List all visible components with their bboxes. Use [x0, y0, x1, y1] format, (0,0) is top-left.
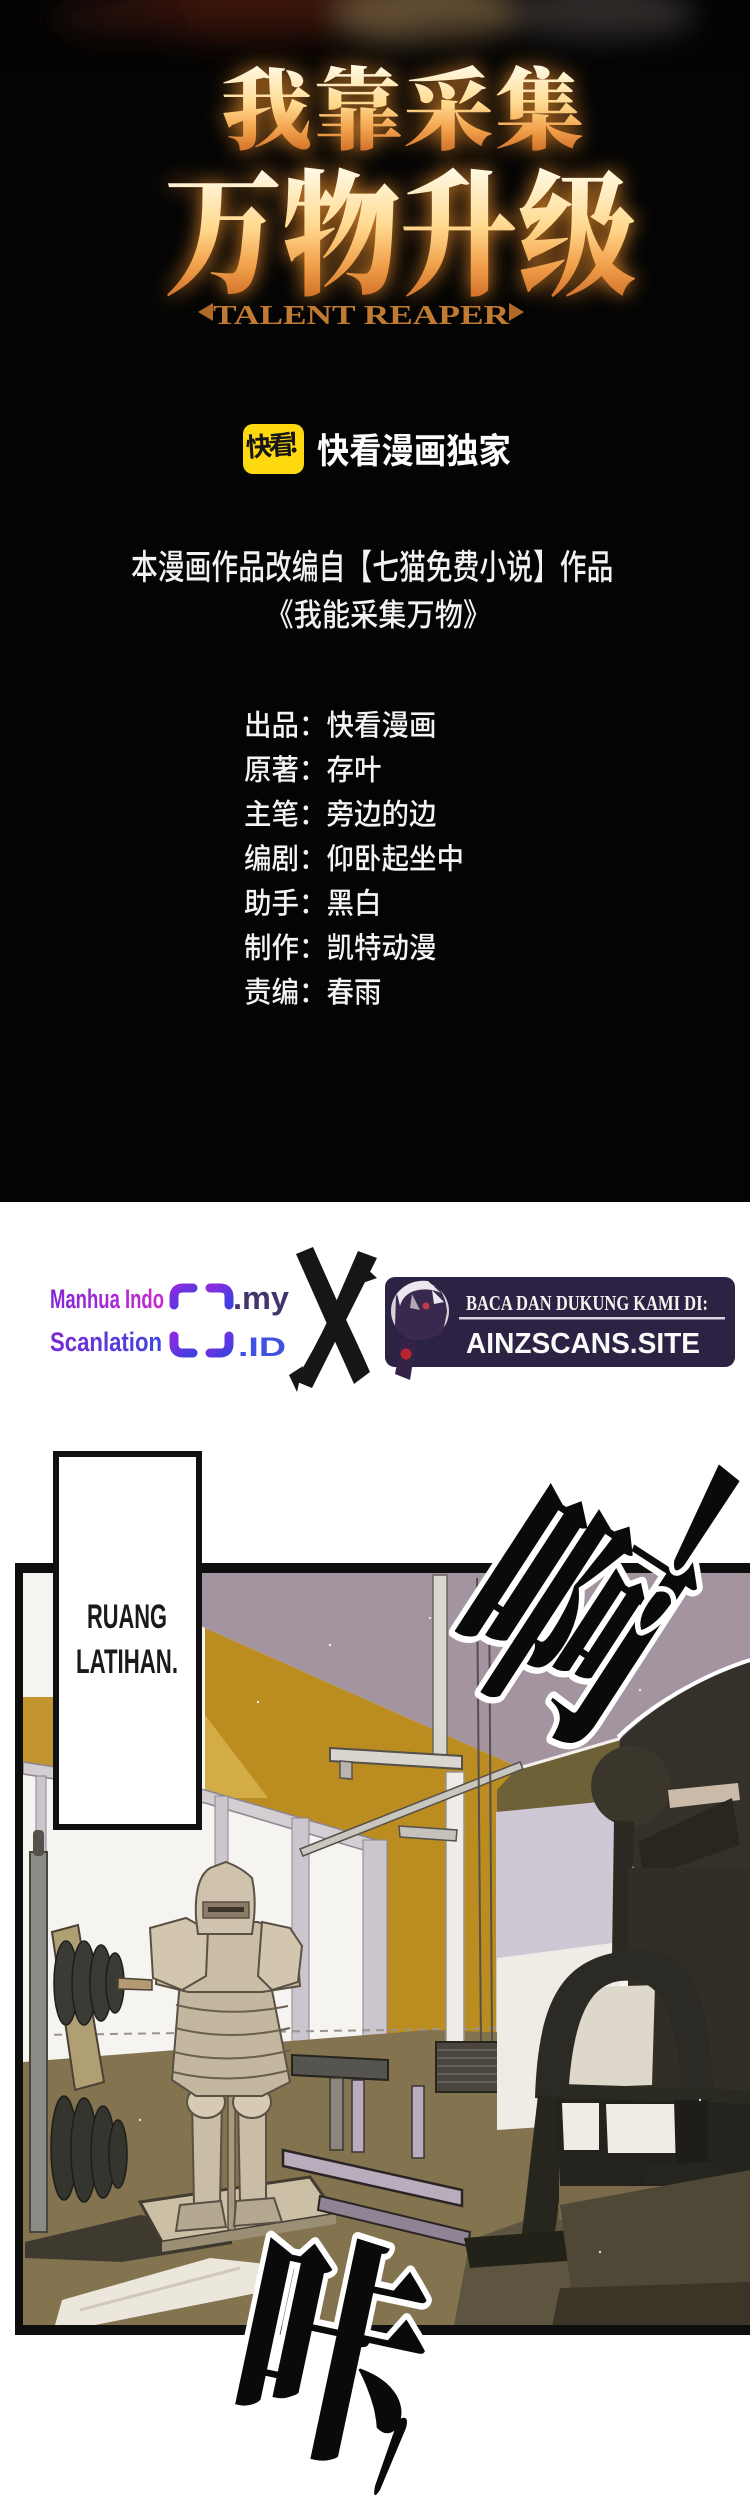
svg-text:TALENT REAPER: TALENT REAPER	[213, 300, 510, 330]
svg-text:RUANG: RUANG	[87, 1598, 167, 1636]
svg-text:.my: .my	[233, 1280, 289, 1316]
svg-text:Scanlation: Scanlation	[50, 1327, 162, 1357]
svg-text:AINZSCANS.SITE: AINZSCANS.SITE	[466, 1328, 700, 1360]
svg-text:.ID: .ID	[238, 1332, 286, 1362]
svg-text:Manhua Indo: Manhua Indo	[50, 1284, 164, 1314]
svg-text:BACA DAN DUKUNG KAMI DI:: BACA DAN DUKUNG KAMI DI:	[466, 1291, 708, 1315]
svg-text:LATIHAN.: LATIHAN.	[76, 1643, 178, 1681]
